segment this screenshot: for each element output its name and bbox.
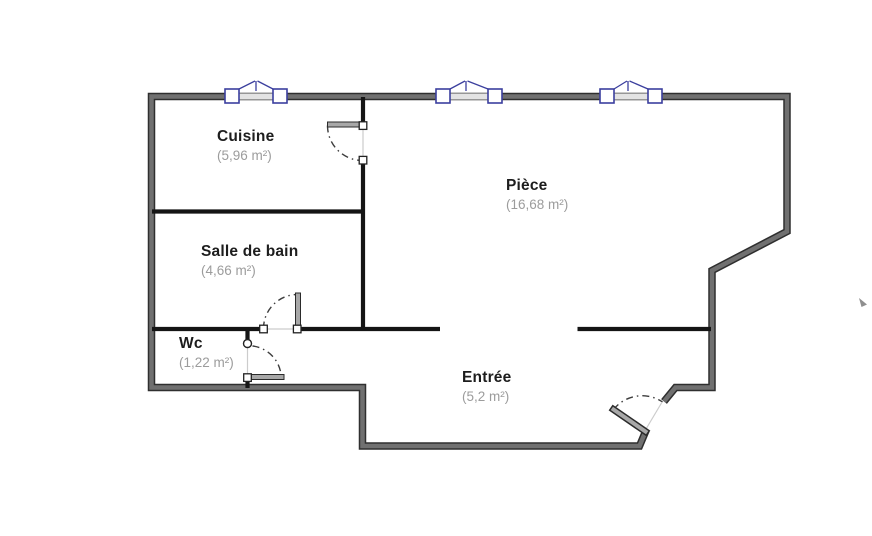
door-swing-arc <box>264 295 298 329</box>
outer-walls <box>152 97 788 447</box>
door-leaf <box>296 293 301 329</box>
window-icon-2 <box>436 81 502 103</box>
window-frame-right <box>648 89 662 103</box>
outer-wall-fill <box>152 97 788 447</box>
window-glass <box>614 94 648 100</box>
bathroom-door <box>260 293 301 333</box>
door-leaf <box>249 375 284 380</box>
floor-plan: Cuisine (5,96 m²) Pièce (16,68 m²) Salle… <box>0 0 872 536</box>
door-latch-square <box>260 325 268 333</box>
door-leaf <box>614 410 646 432</box>
window-frame-right <box>488 89 502 103</box>
window-frame-left <box>600 89 614 103</box>
door-hinge-square <box>293 325 301 333</box>
window-glass <box>239 94 273 100</box>
cursor-artifact <box>859 298 867 307</box>
door-leaf <box>328 122 364 127</box>
entrance-door <box>614 396 663 432</box>
door-hinge-circle <box>244 340 252 348</box>
window-frame-right <box>273 89 287 103</box>
kitchen-door <box>328 122 367 164</box>
floor-plan-drawing <box>0 0 872 536</box>
window-icon-3 <box>600 81 662 103</box>
interior-walls <box>152 97 711 388</box>
window-frame-left <box>225 89 239 103</box>
outer-wall-edge <box>152 97 788 447</box>
door-swing-arc <box>328 126 364 161</box>
door-latch-square <box>359 156 367 164</box>
door-swing-arc <box>253 346 281 372</box>
door-hinge-square <box>244 374 252 382</box>
window-icon-1 <box>225 81 287 103</box>
window-sash-lines <box>239 81 273 91</box>
window-frame-left <box>436 89 450 103</box>
wc-door <box>244 340 285 382</box>
window-sash-lines <box>450 81 488 91</box>
window-glass <box>450 94 488 100</box>
door-closed-line <box>646 403 662 429</box>
window-sash-lines <box>614 81 648 91</box>
door-hinge-square <box>359 122 367 130</box>
door-swing-arc <box>614 396 663 410</box>
